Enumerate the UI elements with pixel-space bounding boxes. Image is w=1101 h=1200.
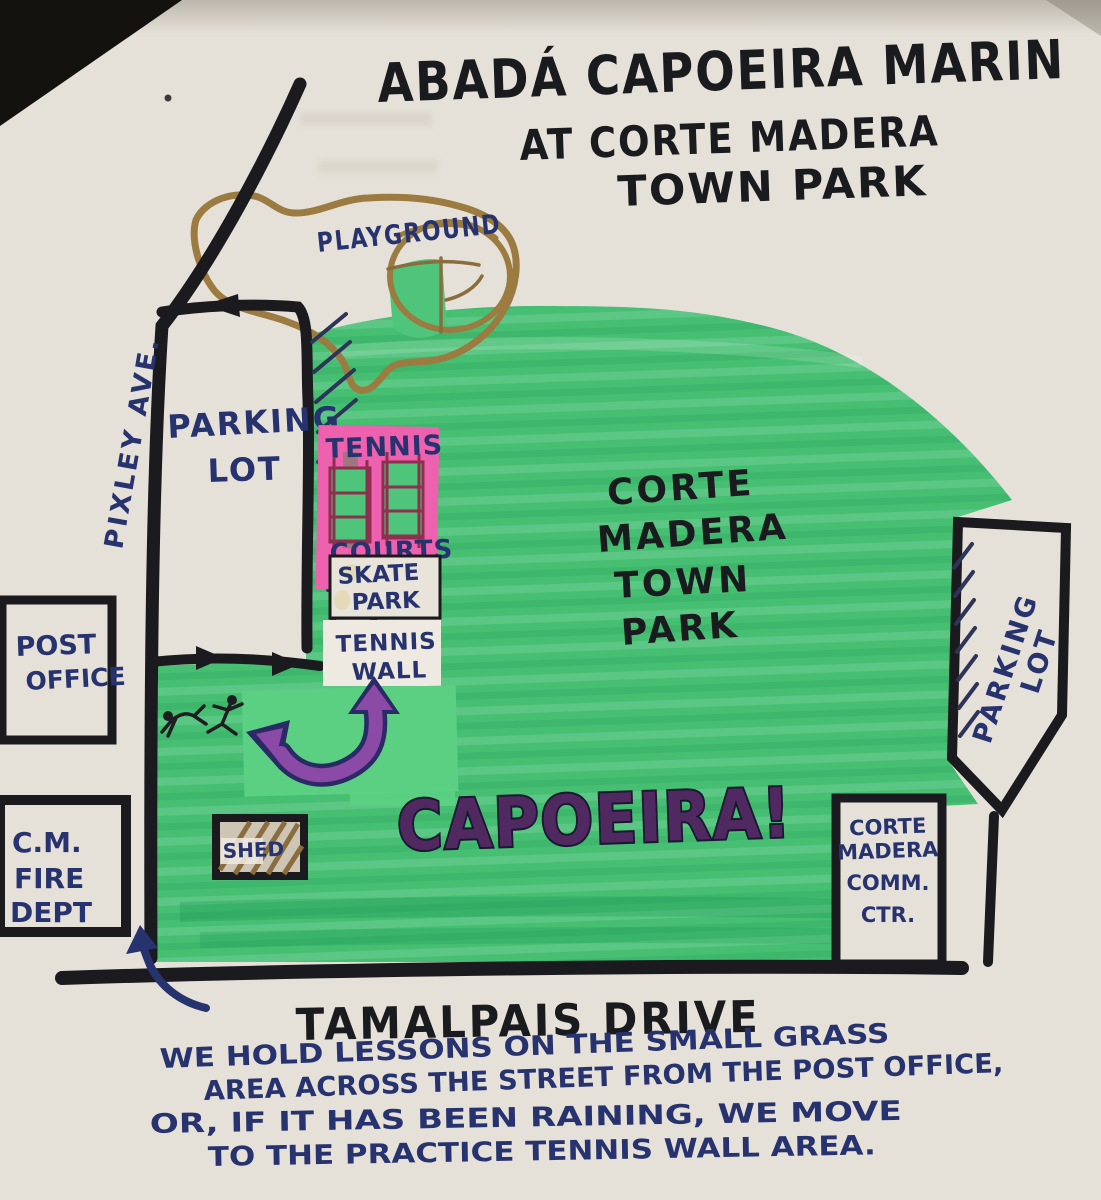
community-center: CORTE MADERA COMM. CTR. (836, 798, 942, 964)
post-office-label-line1: POST (15, 629, 97, 663)
comm-ctr-label-line2: MADERA (837, 837, 940, 865)
post-office: POST OFFICE (2, 600, 126, 740)
tennis-court-2 (383, 462, 423, 538)
tennis-wall-label-line1: TENNIS (335, 628, 437, 658)
post-office-label-line2: OFFICE (25, 662, 127, 696)
fire-dept-label-line2: FIRE (14, 862, 84, 895)
comm-ctr-label-line1: CORTE (849, 814, 927, 841)
capoeira-title: CAPOEIRA! (396, 774, 794, 867)
fire-dept-label-line1: C.M. (12, 826, 82, 859)
comm-ctr-label-line3: COMM. (846, 871, 929, 895)
town-park-line4: PARK (620, 605, 741, 654)
skate-park-smudge2 (334, 590, 350, 610)
skate-park-label-line1: SKATE (337, 560, 420, 590)
grass-streak-dark1 (180, 906, 930, 912)
tennis-courts-label-line1: TENNIS (325, 430, 444, 465)
fire-dept: C.M. FIRE DEPT (0, 800, 126, 932)
grass-streak-dark2 (200, 935, 935, 940)
skate-park-area: SKATE PARK (330, 556, 440, 618)
tennis-wall-label-line2: WALL (351, 657, 427, 686)
skate-park-label-line2: PARK (351, 588, 421, 616)
comm-ctr-label-line4: CTR. (861, 903, 915, 927)
map-canvas: PLAYGROUND PARKING LOT PIXLEY AVE. TENNI… (0, 0, 1101, 1200)
tennis-court-1 (330, 468, 370, 542)
west-parking-label-line2: LOT (207, 449, 283, 490)
east-parking-access-road (988, 816, 994, 962)
ink-dot (165, 95, 172, 102)
fire-dept-label-line3: DEPT (10, 896, 92, 929)
shed-label: SHED (222, 837, 284, 863)
tennis-wall-area: TENNIS WALL (323, 620, 441, 686)
town-park-line3: TOWN (613, 559, 752, 607)
shed: SHED (216, 818, 304, 876)
hand-drawn-park-map: PLAYGROUND PARKING LOT PIXLEY AVE. TENNI… (0, 0, 1101, 1200)
